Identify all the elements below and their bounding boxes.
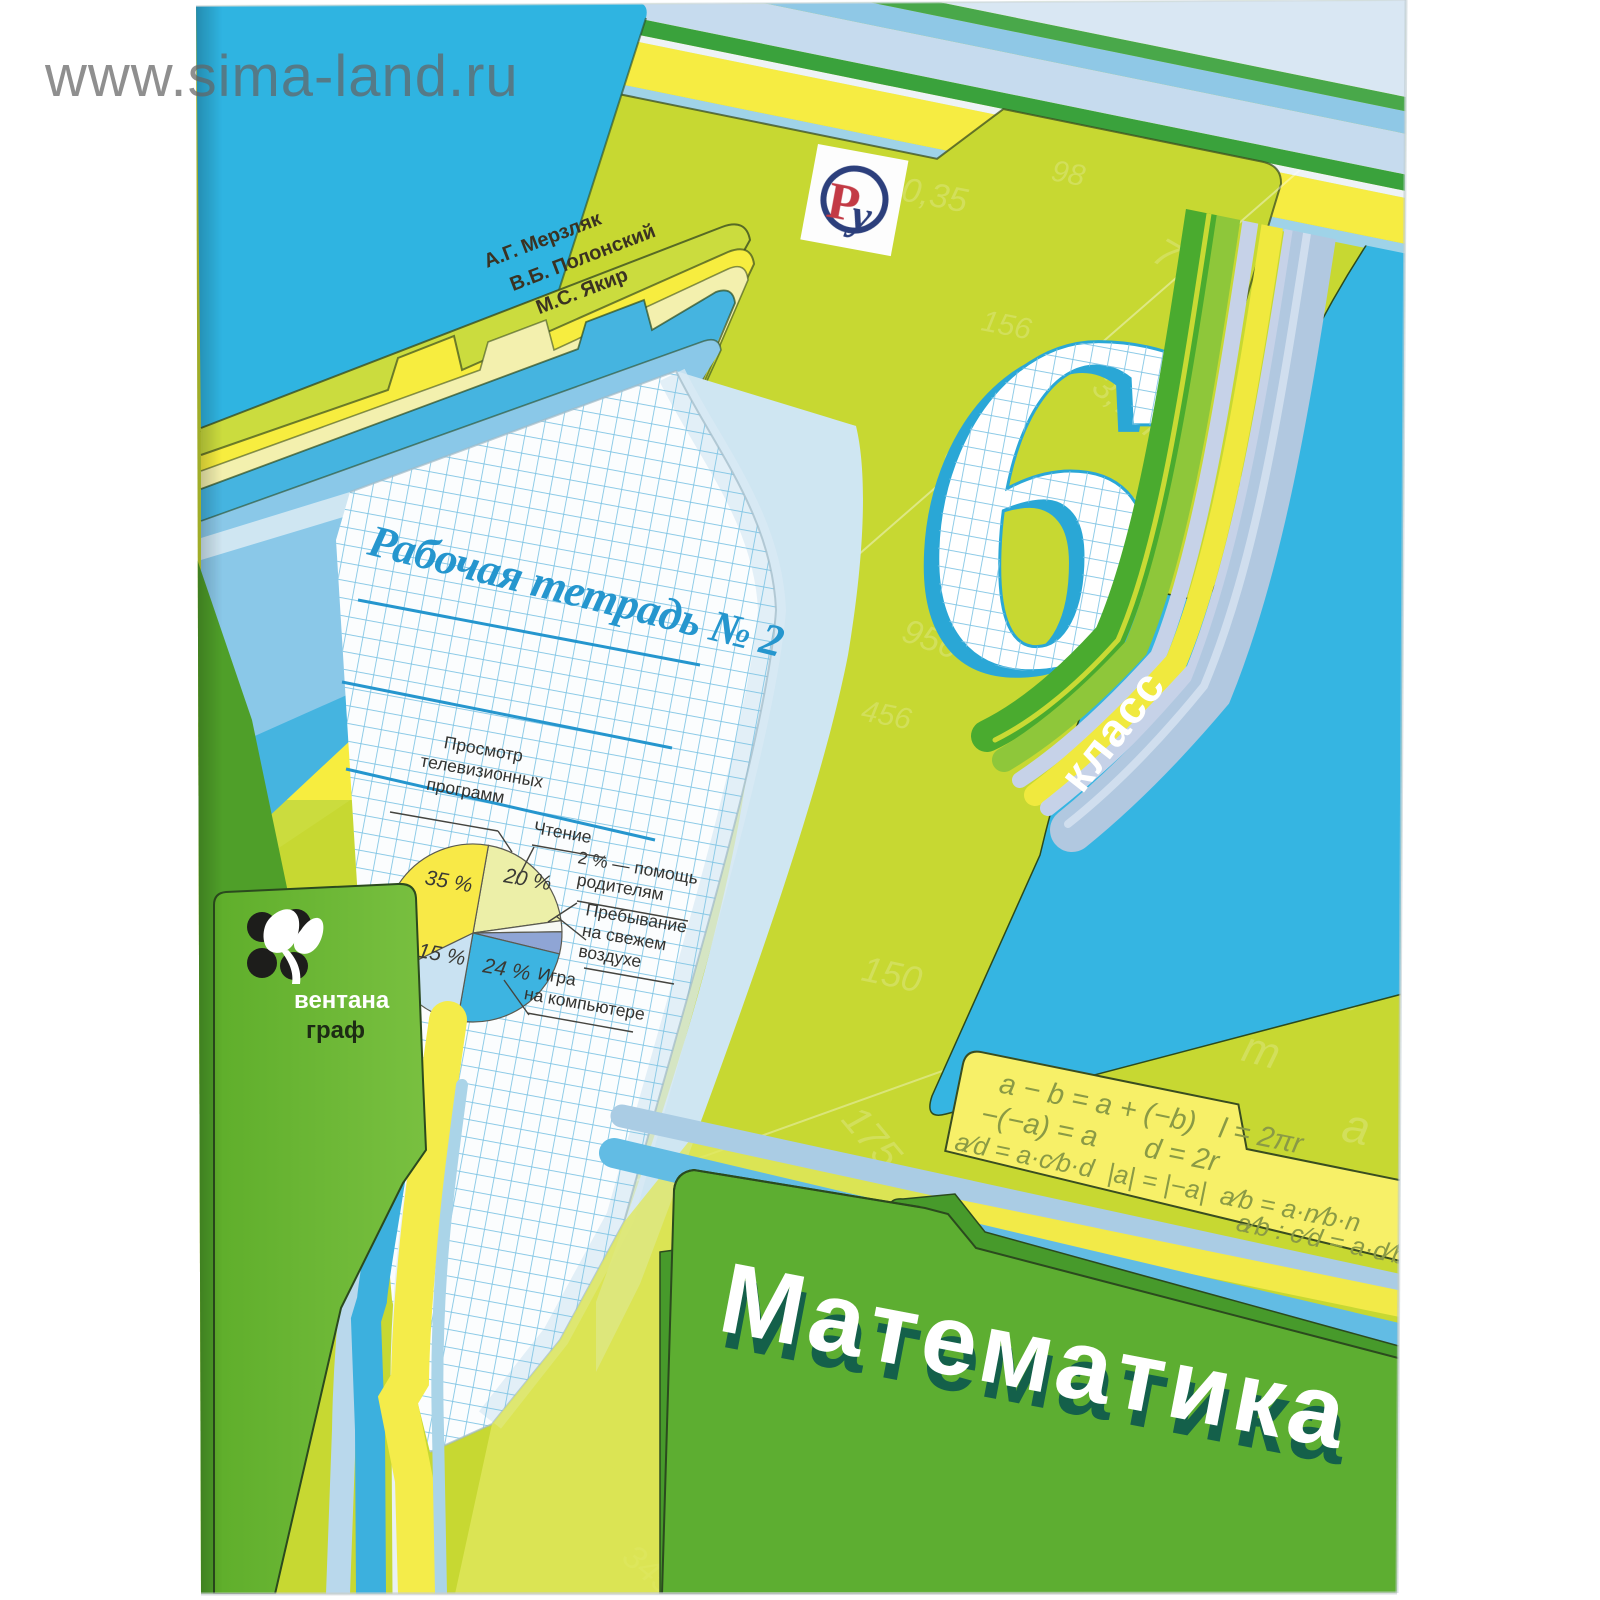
svg-text:вентана: вентана: [294, 987, 390, 1014]
svg-text:www.sima-land.ru: www.sima-land.ru: [44, 44, 519, 109]
svg-text:граф: граф: [306, 1017, 365, 1044]
svg-text:98: 98: [1049, 154, 1088, 193]
